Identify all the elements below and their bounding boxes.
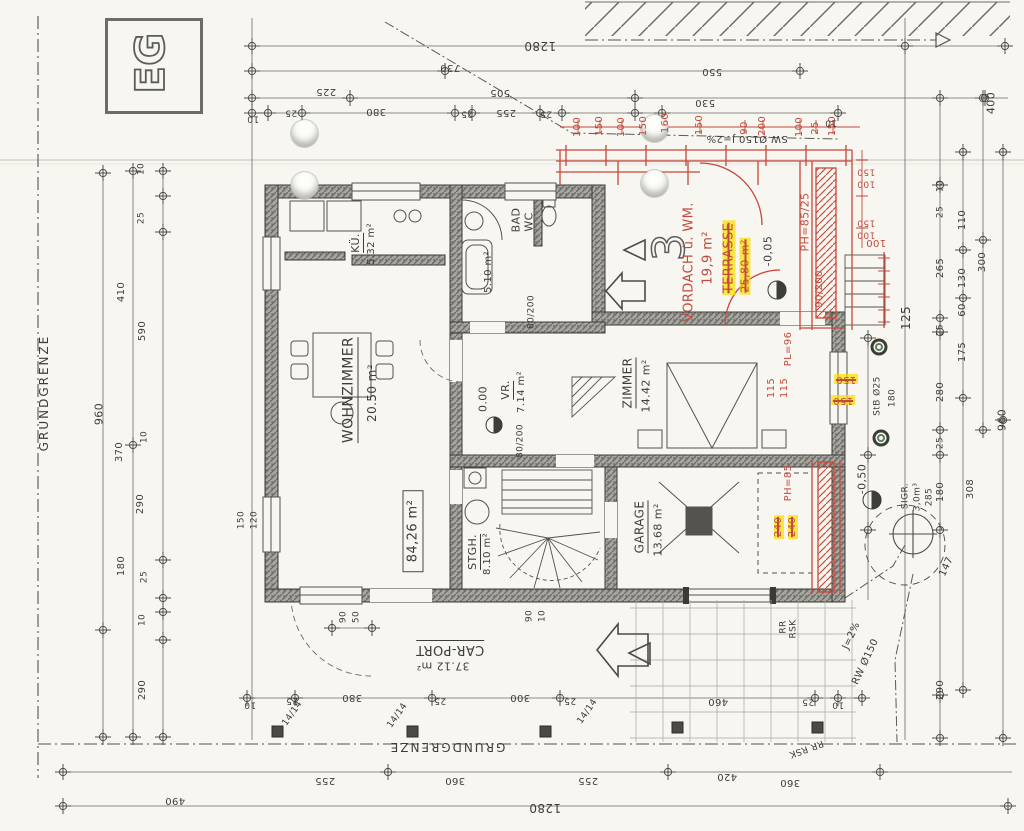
dim: 290 [138,680,148,700]
red-dim: 150 [595,116,605,136]
note-terrasse-area: 25,80 m² [740,237,751,294]
room-label-vr: VR. [500,380,514,399]
label-rr: RR [780,620,789,633]
dim: 225 [316,86,336,96]
note-pl96: PL=96 [784,332,794,367]
note-115a: 115 [767,378,777,398]
dim: 25 [937,437,946,449]
note-240a: 240 [774,515,784,539]
note-ph85: PH=85 [784,465,794,502]
label-stb: StB Ø25 [874,376,883,416]
dim: 25 [141,571,150,583]
room-label-kueche: KÜ. [350,233,364,253]
dim: 410 [117,282,127,302]
red-win-dim: 100 [857,179,875,188]
dim: 25 [461,109,473,118]
dim: 550 [702,66,722,76]
dim: 590 [138,321,148,341]
red-dim: 25 [811,121,821,135]
grundgrenze-label-bottom: GRUNDGRENZE [389,741,506,753]
dim: 460 [708,696,728,706]
room-label-carport: CAR-PORT [416,640,484,656]
dim: 300 [510,692,530,702]
note-terrasse: TERRASSE [723,221,736,296]
red-dim: 160 [661,113,671,133]
room-area-stgh: 8.10 m² [483,533,493,575]
dim: 10 [825,118,837,127]
label-stb-dim: 180 [889,389,898,407]
dim: 380 [342,692,362,702]
red-win-dim: 100 [857,230,875,239]
label-rsk: RSK [790,619,799,638]
dim: 370 [115,442,125,462]
red-dim: 100 [573,117,583,137]
note-vordach-area: 19,9 m² [702,231,715,285]
dim: 25 [138,212,147,224]
dim: 10 [539,610,548,622]
scan-artifacts [0,160,1024,164]
window-dim: 150 [238,511,247,529]
dim: 50 [353,611,362,623]
red-dim: 100 [617,117,627,137]
dim: 360 [780,777,800,787]
red-dim: 150 [639,116,649,136]
note-vordach: VORDACH ü. WM. [683,202,696,322]
red-dim: 100 [795,117,805,137]
label-sigr: SIGR. [902,483,911,509]
red-win-dim: 150 [857,218,875,227]
dim: 25 [937,324,946,336]
punch-hole [291,120,318,147]
dim: 255 [578,775,598,785]
floor-title: EG [131,33,171,94]
room-area-garage: 13.68 m² [653,503,664,556]
dim: 380 [366,106,386,116]
note-115b: 115 [780,378,790,398]
dim: 10 [247,114,259,123]
dim: 960 [94,403,105,425]
dim: 730 [440,62,460,72]
room-area-vr: 7.14 m² [517,371,527,413]
grundgrenze-label-left: GRUNDGRENZE [38,335,50,452]
dim: 10 [937,180,946,192]
dim: 25 [802,697,814,706]
dim: 175 [958,342,968,362]
dim: 490 [165,795,185,805]
floorplan-scan: EG 3 GRUNDGRENZE GRUNDGRENZE WOHNZIMMER … [0,0,1024,831]
dim: 960 [997,409,1008,431]
level-garten: -0,50 [857,464,868,494]
dim: 280 [936,382,946,402]
dim: 110 [958,210,968,230]
dim: 90 [526,610,535,622]
dim: 265 [936,258,946,278]
dim: 360 [445,775,465,785]
room-area-wohnzimmer: 20.50 m² [366,364,378,422]
dim: 10 [139,614,148,626]
note-hl150a: 150 [834,374,858,384]
dim: 180 [117,556,127,576]
dim: 180 [936,482,946,502]
room-label-wohnzimmer: WOHNZIMMER [342,337,359,443]
room-label-zimmer: ZIMMER [622,358,637,409]
red-win-dim: 150 [857,167,875,176]
dim: 25 [285,108,297,117]
room-area-bad: 5.10 m² [484,251,494,293]
room-area-kueche: 5.32 m² [367,223,377,265]
window-dim: 120 [251,511,260,529]
dim: 290 [936,680,946,700]
dim: 25 [937,206,946,218]
dim: 10 [832,700,844,709]
room-area-carport: 37.12 m² [416,661,469,672]
label-sigr-dim: 285 [926,488,935,506]
dim: 10 [138,163,147,175]
dim: 25 [564,696,576,705]
total-area-box: 84,26 m² [403,490,424,572]
door-dim: 80/200 [517,424,526,458]
plan-drawing [0,0,1024,831]
punch-hole [291,172,318,199]
level-terrasse: -0,05 [763,236,774,266]
room-label-bad: BAD [511,208,522,233]
room-label-garage: GARAGE [634,501,649,554]
dim: 400 [986,92,997,114]
room-label-stgh: STGH. [467,534,481,570]
note-hl150b: 150 [831,395,855,405]
dim: 10 [141,431,150,443]
red-dim: 150 [695,115,705,135]
note-240b: 240 [788,515,798,539]
door-dim: 80/200 [528,295,537,329]
dimension-lines [58,18,1012,806]
dim: 300 [978,252,988,272]
dim: 290 [136,494,146,514]
dim: 125 [900,306,912,330]
dim: 1280 [529,802,561,814]
room-label-wc: WC [524,212,535,231]
dim: 25 [540,109,552,118]
label-sigr-vol: 3,0m³ [914,483,923,512]
dim: 420 [717,771,737,781]
dim: 10 [244,700,256,709]
punch-hole [641,170,668,197]
dim: 308 [966,479,976,499]
note-ph8525: PH=85/25 [800,192,811,251]
dim: 90 [340,611,349,623]
neighbour-hatch [585,2,1010,36]
dim: 1280 [524,40,556,52]
dim: 25 [286,696,298,705]
note-door-90-200: 90/200 [815,270,825,308]
pipe-label-sw: SW Ø150 J=2% [706,133,788,143]
dim: 255 [496,107,516,117]
level-eg: 0.00 [478,386,489,412]
dim: 60 [958,303,968,317]
dim: 505 [490,87,510,97]
carport-grid [630,600,856,742]
dim: 130 [958,268,968,288]
room-area-zimmer: 14.42 m² [641,359,652,412]
dim: 530 [695,97,715,107]
dim: 25 [434,696,446,705]
carport-posts [272,722,823,737]
dim: 255 [315,775,335,785]
